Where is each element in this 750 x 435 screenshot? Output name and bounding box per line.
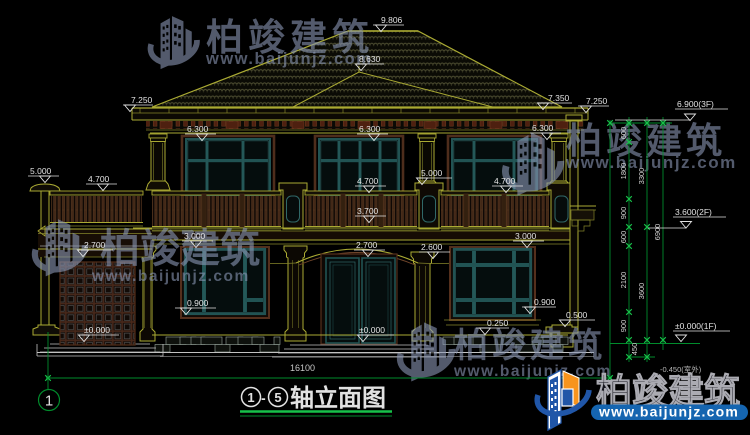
svg-text:2.600: 2.600 bbox=[421, 242, 443, 252]
svg-text:±0.000: ±0.000 bbox=[359, 325, 385, 335]
svg-text:www.baijunjz.com: www.baijunjz.com bbox=[205, 50, 372, 68]
svg-text:0.250: 0.250 bbox=[487, 318, 509, 328]
svg-text:1: 1 bbox=[247, 390, 254, 405]
svg-text:2.700: 2.700 bbox=[356, 240, 378, 250]
svg-text:4.700: 4.700 bbox=[357, 176, 379, 186]
svg-text:0.900: 0.900 bbox=[534, 297, 556, 307]
svg-text:3.600(2F): 3.600(2F) bbox=[675, 207, 712, 217]
svg-text:3600: 3600 bbox=[637, 283, 646, 300]
svg-text:±0.000(1F): ±0.000(1F) bbox=[675, 321, 717, 331]
svg-text:2.700: 2.700 bbox=[84, 240, 106, 250]
svg-text:3.700: 3.700 bbox=[357, 206, 379, 216]
svg-text:7.250: 7.250 bbox=[131, 95, 153, 105]
svg-text:600: 600 bbox=[619, 127, 628, 140]
svg-text:0.900: 0.900 bbox=[187, 298, 209, 308]
svg-text:1800: 1800 bbox=[619, 163, 628, 180]
svg-text:7.250: 7.250 bbox=[586, 96, 608, 106]
svg-text:900: 900 bbox=[619, 320, 628, 333]
svg-text:8.630: 8.630 bbox=[359, 54, 381, 64]
svg-text:6.900(3F): 6.900(3F) bbox=[677, 99, 714, 109]
svg-text:5: 5 bbox=[274, 390, 281, 405]
svg-text:4.700: 4.700 bbox=[88, 174, 110, 184]
svg-text:2100: 2100 bbox=[619, 272, 628, 289]
svg-text:3300: 3300 bbox=[637, 168, 646, 185]
svg-text:6.300: 6.300 bbox=[359, 124, 381, 134]
svg-text:4.700: 4.700 bbox=[494, 176, 516, 186]
svg-text:www.baijunjz.com: www.baijunjz.com bbox=[598, 404, 739, 420]
svg-text:16100: 16100 bbox=[290, 363, 315, 373]
svg-text:6.300: 6.300 bbox=[187, 124, 209, 134]
svg-text:轴立面图: 轴立面图 bbox=[290, 384, 386, 412]
svg-text:0.500: 0.500 bbox=[566, 310, 588, 320]
svg-text:www.baijunjz.com: www.baijunjz.com bbox=[565, 153, 737, 172]
svg-text:5.000: 5.000 bbox=[30, 166, 52, 176]
svg-text:900: 900 bbox=[619, 207, 628, 220]
svg-text:6.300: 6.300 bbox=[532, 123, 554, 133]
svg-text:6900: 6900 bbox=[653, 224, 662, 241]
svg-text:3.000: 3.000 bbox=[515, 231, 537, 241]
svg-text:600: 600 bbox=[619, 231, 628, 244]
svg-text:5.000: 5.000 bbox=[421, 168, 443, 178]
svg-text:3.000: 3.000 bbox=[184, 231, 206, 241]
svg-text:7.350: 7.350 bbox=[548, 93, 570, 103]
svg-text:1: 1 bbox=[45, 393, 53, 410]
svg-text:柏竣建筑: 柏竣建筑 bbox=[100, 227, 260, 271]
svg-text:-: - bbox=[261, 390, 266, 406]
svg-text:柏竣建筑: 柏竣建筑 bbox=[454, 326, 606, 365]
svg-text:www.baijunjz.com: www.baijunjz.com bbox=[453, 363, 612, 380]
svg-text:www.baijunjz.com: www.baijunjz.com bbox=[91, 268, 250, 285]
svg-text:9.806: 9.806 bbox=[381, 15, 403, 25]
svg-text:±0.000: ±0.000 bbox=[84, 325, 110, 335]
svg-text:450: 450 bbox=[630, 343, 639, 356]
